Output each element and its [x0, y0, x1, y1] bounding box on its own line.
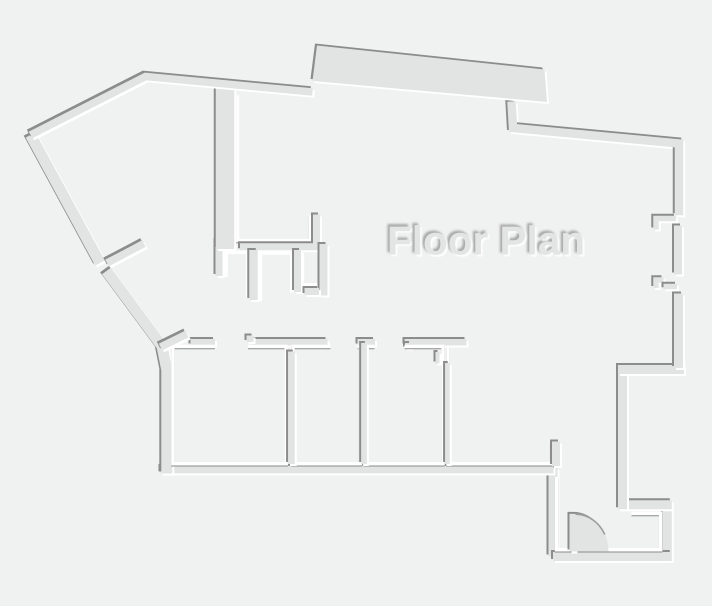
svg-text:Floor Plan: Floor Plan	[387, 217, 585, 263]
